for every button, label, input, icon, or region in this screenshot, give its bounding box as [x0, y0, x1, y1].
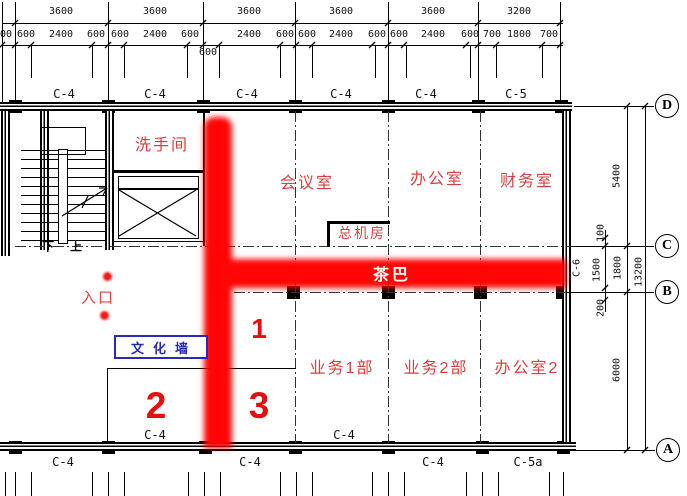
- plan-lines-svg: [0, 0, 687, 496]
- culture-wall-sign: 文化墙: [114, 335, 208, 359]
- dim-sub: 600: [87, 29, 105, 40]
- stair-up-label: 上: [70, 238, 82, 255]
- grid-label-top: C-4: [144, 87, 166, 101]
- route-number-1: 1: [251, 313, 267, 345]
- dim-sub: 1800: [507, 29, 531, 40]
- dim-right-total: 13200: [634, 257, 645, 287]
- grid-label-bottom: C-4: [144, 428, 166, 442]
- room-label-office2: 办公室2: [495, 354, 560, 378]
- dim-sub: 600: [298, 29, 316, 40]
- dim-sub-dropped: 600: [199, 47, 217, 58]
- dim-sub: 2400: [143, 29, 167, 40]
- dim-right: 5400: [612, 164, 623, 188]
- room-label-finance: 财务室: [500, 167, 554, 191]
- room-label-washroom: 洗手间: [135, 131, 189, 155]
- floor-plan: 3600 3600 3600 3600 3600 3200 600 600 24…: [0, 0, 687, 496]
- dim-right: 1800: [613, 256, 624, 280]
- culture-wall-label: 文化墙: [131, 338, 197, 357]
- dim-sub: 2400: [237, 29, 261, 40]
- room-label-meeting: 会议室: [280, 169, 334, 193]
- grid-bubble-D: D: [655, 94, 679, 118]
- dim-top: 3600: [421, 6, 445, 17]
- dim-top: 3600: [143, 6, 167, 17]
- grid-label-top: C-4: [236, 87, 258, 101]
- dim-sub: 2400: [421, 29, 445, 40]
- grid-bubble-A: A: [656, 438, 680, 462]
- dim-top: 3600: [49, 6, 73, 17]
- dim-sub: 600: [181, 29, 199, 40]
- dim-sub: 600: [368, 29, 386, 40]
- dim-right: 1500: [592, 258, 603, 282]
- dim-sub: 600: [461, 29, 479, 40]
- grid-bubble-B: B: [655, 280, 679, 304]
- wall-tag: C-6: [572, 259, 583, 277]
- grid-label-top: C-4: [53, 87, 75, 101]
- grid-label-bottom: C-4: [422, 455, 444, 469]
- room-label-office: 办公室: [410, 165, 464, 189]
- dim-sub: 2400: [329, 29, 353, 40]
- grid-label-top: C-5: [505, 87, 527, 101]
- room-label-sales2: 业务2部: [404, 354, 469, 378]
- dim-top: 3200: [507, 6, 531, 17]
- grid-label-bottom: C-4: [239, 455, 261, 469]
- entrance-dot-bottom: [100, 311, 109, 320]
- dim-sub: 600: [17, 29, 35, 40]
- grid-label-bottom: C-5a: [514, 455, 543, 469]
- route-number-3: 3: [249, 385, 270, 427]
- route-number-2: 2: [146, 385, 167, 427]
- dim-sub: 600: [390, 29, 408, 40]
- dim-right: 6000: [612, 358, 623, 382]
- dim-top: 3600: [237, 6, 261, 17]
- dim-top: 3600: [329, 6, 353, 17]
- room-label-sales1: 业务1部: [310, 354, 375, 378]
- dim-sub: 700: [483, 29, 501, 40]
- dim-sub: 600: [111, 29, 129, 40]
- dim-right: 200: [596, 299, 607, 317]
- stair-down-label: 下: [42, 238, 54, 255]
- dim-sub: 600: [0, 29, 12, 40]
- grid-label-bottom: C-4: [52, 455, 74, 469]
- grid-bubble-C: C: [655, 234, 679, 258]
- dim-sub: 700: [540, 29, 558, 40]
- grid-label-top: C-4: [330, 87, 352, 101]
- room-label-teabar: 茶巴: [373, 261, 411, 285]
- dim-sub: 2400: [49, 29, 73, 40]
- dim-sub: 600: [276, 29, 294, 40]
- dim-right: 100: [596, 224, 607, 242]
- entrance-dot-top: [103, 272, 112, 281]
- room-label-switchboard: 总机房: [338, 223, 386, 243]
- grid-label-bottom: C-4: [333, 428, 355, 442]
- grid-label-top: C-4: [415, 87, 437, 101]
- entrance-label: 入口: [81, 287, 115, 308]
